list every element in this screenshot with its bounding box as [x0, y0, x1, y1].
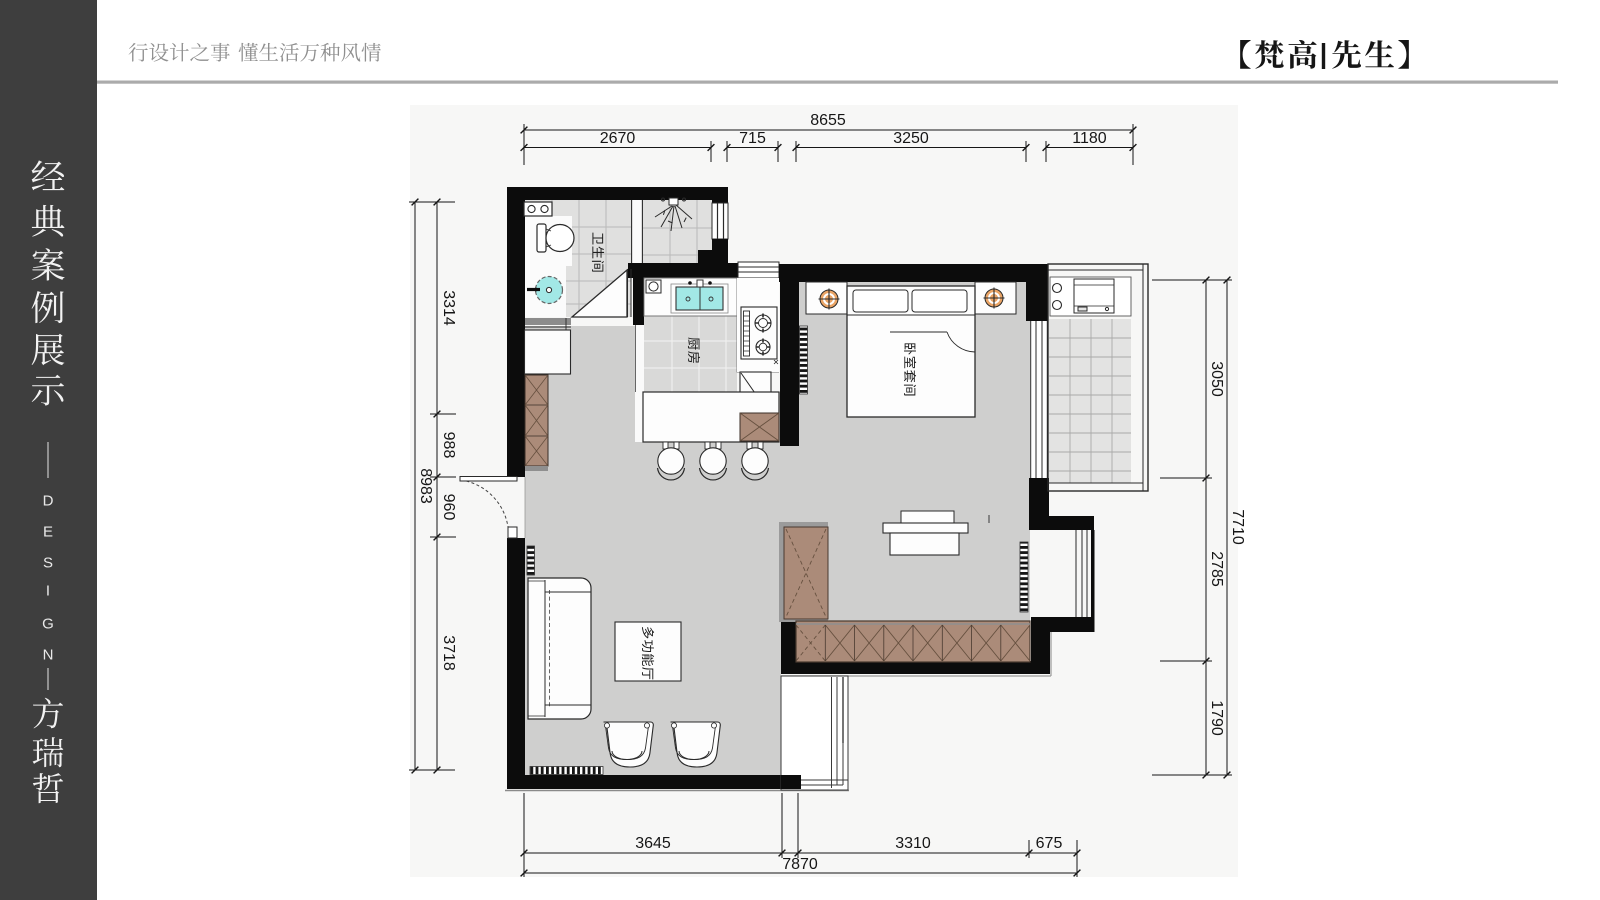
svg-text:3050: 3050 [1208, 361, 1225, 397]
svg-text:3645: 3645 [635, 835, 671, 852]
svg-text:2670: 2670 [600, 130, 636, 147]
svg-text:2785: 2785 [1208, 551, 1225, 587]
svg-text:8655: 8655 [810, 112, 846, 129]
svg-text:3314: 3314 [440, 290, 457, 326]
svg-text:8983: 8983 [417, 468, 434, 504]
svg-text:1790: 1790 [1208, 700, 1225, 736]
svg-text:675: 675 [1036, 835, 1063, 852]
svg-text:3250: 3250 [893, 130, 929, 147]
svg-text:960: 960 [440, 494, 457, 521]
svg-text:7870: 7870 [782, 856, 818, 873]
svg-text:S: S [43, 555, 53, 572]
svg-text:G: G [42, 616, 54, 633]
svg-text:715: 715 [739, 130, 766, 147]
svg-text:E: E [43, 524, 53, 541]
svg-text:7710: 7710 [1229, 509, 1246, 545]
svg-text:3718: 3718 [440, 635, 457, 671]
svg-text:988: 988 [440, 432, 457, 459]
svg-text:I: I [46, 583, 50, 600]
svg-text:1180: 1180 [1072, 130, 1107, 147]
svg-text:N: N [43, 647, 54, 664]
svg-text:D: D [43, 493, 54, 510]
svg-text:3310: 3310 [895, 835, 931, 852]
